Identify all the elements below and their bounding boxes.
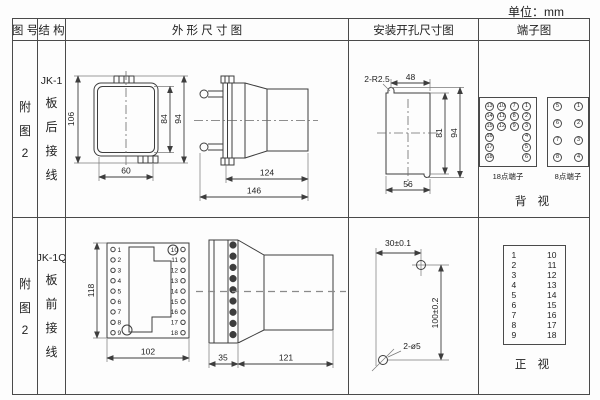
dim-bottom-width: 56 [403, 179, 413, 189]
terminal-pin: 2 [522, 112, 531, 121]
terminal-pin: 2 [574, 119, 583, 128]
dim-front-width: 102 [141, 347, 155, 357]
pin-circle [111, 258, 115, 262]
pin-circle [111, 268, 115, 272]
terminal-diagram-jk1q: 123456789 101112131415161718 正 视 [479, 218, 589, 394]
figure-char: 附 [19, 98, 31, 115]
terminal-col-left: 123456789 [512, 251, 517, 339]
dim-hole-spacing-v: 100±0.2 [430, 297, 440, 328]
terminal-block-18-label: 18点端子 [493, 171, 524, 182]
dim-front-height: 106 [66, 112, 76, 126]
terminal-pin: 14 [485, 112, 494, 121]
terminal-block-18: 131071141182151293164175186 18点端子 [479, 97, 537, 182]
structure-jk1: JK-1 板 后 接 线 [38, 41, 65, 217]
terminal-block-8: 51627384 8点端子 [547, 97, 589, 182]
terminal-pin: 9 [510, 122, 519, 131]
terminal-number: 6 [512, 301, 517, 310]
cell-figure-no-jk1q: 附 图 2 [13, 218, 38, 394]
pin-number: 9 [118, 330, 122, 337]
contact-bump [230, 286, 237, 293]
dim-hole-spacing-h: 30±0.1 [385, 238, 411, 248]
terminal-pin: 15 [485, 122, 494, 131]
terminal-pin: 8 [553, 153, 562, 162]
cell-outline-jk1q: 123456789 101112131415161718 118 102 [66, 218, 349, 394]
dim-inner-height: 81 [434, 128, 444, 138]
contact-bump [230, 320, 237, 327]
terminal-number: 1 [512, 251, 517, 260]
cell-terminal-jk1q: 123456789 101112131415161718 正 视 [479, 218, 589, 394]
pin-number: 12 [171, 268, 179, 275]
contact-bump [230, 275, 237, 282]
cell-outline-jk1: 106 84 94 60 [66, 41, 349, 218]
pin-circle [181, 289, 185, 293]
terminal-pin: 11 [497, 112, 506, 121]
jk1q-side-view: 35 121 [196, 240, 346, 368]
terminal-pin: 17 [485, 143, 494, 152]
figure-char: 2 [22, 146, 29, 160]
pin-number: 8 [118, 320, 122, 327]
dim-outer-height: 94 [173, 114, 183, 124]
pin-circle [181, 310, 185, 314]
contact-bump [230, 331, 237, 338]
dim-total-length: 146 [247, 186, 261, 196]
pin-circle [111, 310, 115, 314]
structure-char: 板 [45, 271, 57, 288]
dim-inner-height: 84 [159, 114, 169, 124]
structure-char: 线 [45, 343, 57, 360]
drawing-page: 单位：mm 图 号 结 构 外 形 尺 寸 图 安装开孔尺寸图 端子图 附 图 … [0, 0, 600, 400]
terminal-pin: 10 [497, 102, 506, 111]
cell-mounting-jk1: 2-R2.5 48 81 94 5 [349, 41, 479, 218]
header-figure-no: 图 号 [13, 19, 38, 41]
terminal-block-8-grid: 51627384 [547, 97, 589, 167]
pin-circle [111, 320, 115, 324]
structure-char: 后 [45, 118, 57, 135]
terminal-pin: 5 [553, 102, 562, 111]
jk1-mounting-view: 2-R2.5 48 81 94 5 [364, 72, 464, 194]
terminal-pin: 13 [485, 102, 494, 111]
pin-number: 17 [171, 320, 179, 327]
terminal-number: 7 [512, 311, 517, 320]
header-mounting: 安装开孔尺寸图 [349, 19, 479, 41]
figure-char: 图 [19, 299, 31, 316]
pin-circle [111, 279, 115, 283]
terminal-block-8-label: 8点端子 [555, 171, 582, 182]
structure-char: 线 [45, 166, 57, 183]
terminal-pin: 5 [522, 143, 531, 152]
header-structure: 结 构 [38, 19, 66, 41]
pin-number: 16 [171, 309, 179, 316]
terminal-pin: 6 [553, 119, 562, 128]
cell-terminal-jk1: 131071141182151293164175186 18点端子 516273… [479, 41, 589, 218]
jk1q-bumps [230, 242, 237, 338]
terminal-pin: 4 [574, 153, 583, 162]
terminal-pin: 8 [510, 112, 519, 121]
terminal-blocks: 131071141182151293164175186 18点端子 516273… [479, 97, 589, 182]
jk1-front-view: 106 84 94 60 [66, 71, 188, 181]
terminal-table: 123456789 101112131415161718 [503, 245, 566, 345]
dim-front-height: 118 [86, 283, 96, 297]
jk1-side-view: 124 146 [194, 76, 318, 201]
pin-number: 18 [171, 330, 179, 337]
contact-bump [230, 309, 237, 316]
structure-model: JK-1Q [38, 252, 66, 264]
terminal-col-right: 101112131415161718 [547, 251, 556, 339]
pin-number: 10 [171, 247, 179, 254]
figure-no-jk1q: 附 图 2 [13, 218, 37, 394]
terminal-pin: 3 [522, 122, 531, 131]
pin-circle [181, 268, 185, 272]
structure-char: 接 [45, 142, 57, 159]
terminal-number: 5 [512, 291, 517, 300]
slot-label: 2-R2.5 [364, 74, 390, 84]
cell-mounting-jk1q: 30±0.1 100±0.2 2-ø5 [349, 218, 479, 394]
pin-number: 4 [118, 278, 122, 285]
terminal-number: 16 [547, 311, 556, 320]
terminal-pin: 7 [553, 136, 562, 145]
holes-label: 2-ø5 [403, 341, 421, 351]
terminal-pin: 6 [522, 153, 531, 162]
structure-jk1q: JK-1Q 板 前 接 线 [38, 218, 65, 394]
terminal-pin: 12 [497, 122, 506, 131]
pin-circle [181, 299, 185, 303]
terminal-pin: 3 [574, 136, 583, 145]
pin-circle [181, 279, 185, 283]
jk1q-left-pins: 123456789 [111, 247, 122, 337]
pin-circle [181, 258, 185, 262]
terminal-number: 3 [512, 271, 517, 280]
terminal-pin: 1 [522, 102, 531, 111]
terminal-number: 11 [547, 261, 556, 270]
terminal-number: 15 [547, 301, 556, 310]
contact-bump [230, 253, 237, 260]
structure-char: 板 [45, 94, 57, 111]
cell-structure-jk1q: JK-1Q 板 前 接 线 [38, 218, 66, 394]
terminal-number: 10 [547, 251, 556, 260]
structure-char: 前 [45, 295, 57, 312]
structure-model: JK-1 [41, 75, 63, 87]
terminal-block-18-grid: 131071141182151293164175186 [479, 97, 537, 167]
terminal-pin: 18 [485, 153, 494, 162]
figure-no-jk1: 附 图 2 [13, 41, 37, 217]
pin-number: 2 [118, 257, 122, 264]
jk1q-right-pins: 101112131415161718 [171, 247, 185, 337]
terminal-number: 2 [512, 261, 517, 270]
pin-circle [111, 299, 115, 303]
jk1-outline-drawing: 106 84 94 60 [66, 41, 349, 218]
jk1q-mounting-drawing: 30±0.1 100±0.2 2-ø5 [349, 218, 479, 394]
terminal-pin: 1 [574, 102, 583, 111]
structure-char: 接 [45, 319, 57, 336]
terminal-number: 8 [512, 321, 517, 330]
pin-number: 7 [118, 309, 122, 316]
pin-number: 14 [171, 288, 179, 295]
terminal-diagram-jk1: 131071141182151293164175186 18点端子 516273… [479, 41, 589, 217]
pin-circle [111, 289, 115, 293]
jk1q-outline-drawing: 123456789 101112131415161718 118 102 [66, 218, 349, 394]
jk1q-front-view: 123456789 101112131415161718 118 102 [86, 243, 189, 362]
terminal-number: 4 [512, 281, 517, 290]
pin-number: 5 [118, 288, 122, 295]
jk1-mounting-drawing: 2-R2.5 48 81 94 5 [349, 41, 479, 218]
terminal-number: 14 [547, 291, 556, 300]
jk1q-mounting-view: 30±0.1 100±0.2 2-ø5 [372, 238, 449, 371]
dim-outer-height: 94 [449, 128, 459, 138]
terminal-number: 18 [547, 331, 556, 340]
terminal-pin: 7 [510, 102, 519, 111]
dim-body-length: 121 [279, 353, 293, 363]
spec-table: 图 号 结 构 外 形 尺 寸 图 安装开孔尺寸图 端子图 附 图 2 JK-1… [12, 18, 590, 395]
terminal-pin: 4 [522, 133, 531, 142]
dim-front-width: 60 [121, 166, 131, 176]
view-label-front: 正 视 [515, 356, 553, 372]
contact-bump [230, 298, 237, 305]
figure-char: 附 [19, 275, 31, 292]
pin-circle [111, 331, 115, 335]
pin-number: 1 [118, 247, 122, 254]
pin-number: 6 [118, 299, 122, 306]
terminal-number: 17 [547, 321, 556, 330]
pin-circle [111, 247, 115, 251]
terminal-pin: 16 [485, 133, 494, 142]
terminal-number: 9 [512, 331, 517, 340]
contact-bump [230, 264, 237, 271]
view-label-rear: 背 视 [515, 193, 553, 209]
dim-top-width: 48 [406, 72, 416, 82]
dim-body-length: 124 [260, 168, 274, 178]
pin-number: 15 [171, 299, 179, 306]
terminal-number: 13 [547, 281, 556, 290]
contact-bump [230, 242, 237, 249]
cell-structure-jk1: JK-1 板 后 接 线 [38, 41, 66, 218]
header-outline: 外 形 尺 寸 图 [66, 19, 349, 41]
figure-char: 图 [19, 122, 31, 139]
cell-figure-no-jk1: 附 图 2 [13, 41, 38, 218]
figure-char: 2 [22, 323, 29, 337]
pin-number: 11 [171, 257, 178, 264]
terminal-number: 12 [547, 271, 556, 280]
header-terminal: 端子图 [479, 19, 589, 41]
dim-flange-depth: 35 [218, 353, 228, 363]
pin-circle [181, 331, 185, 335]
pin-number: 3 [118, 268, 122, 275]
pin-circle [181, 320, 185, 324]
pin-number: 13 [171, 278, 179, 285]
pin-circle [181, 247, 185, 251]
